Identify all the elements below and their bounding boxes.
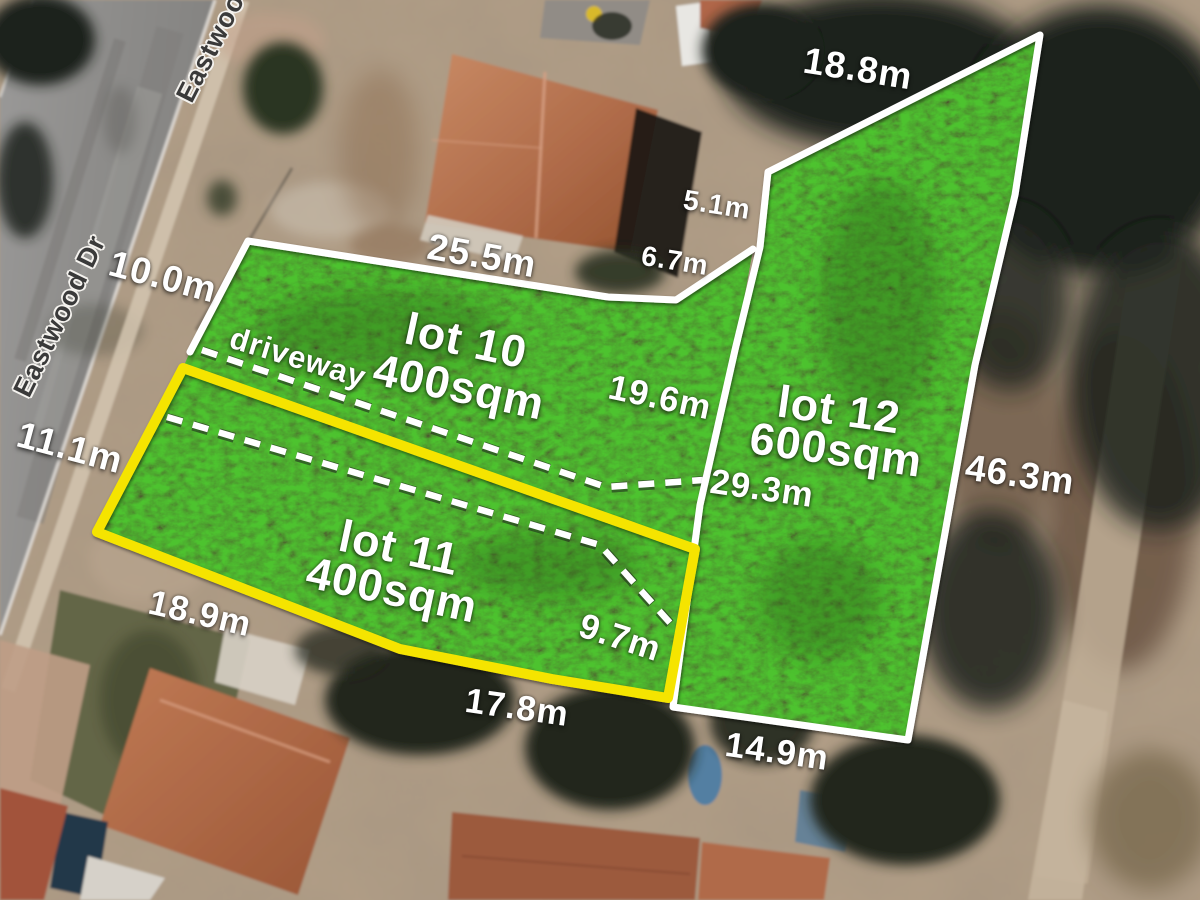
aerial-site-plan: Eastwood Dr Eastwood Dr 10.0m 11.1m 25.5… [0, 0, 1200, 900]
street-tree [243, 42, 323, 134]
satellite-layer [0, 0, 1200, 900]
